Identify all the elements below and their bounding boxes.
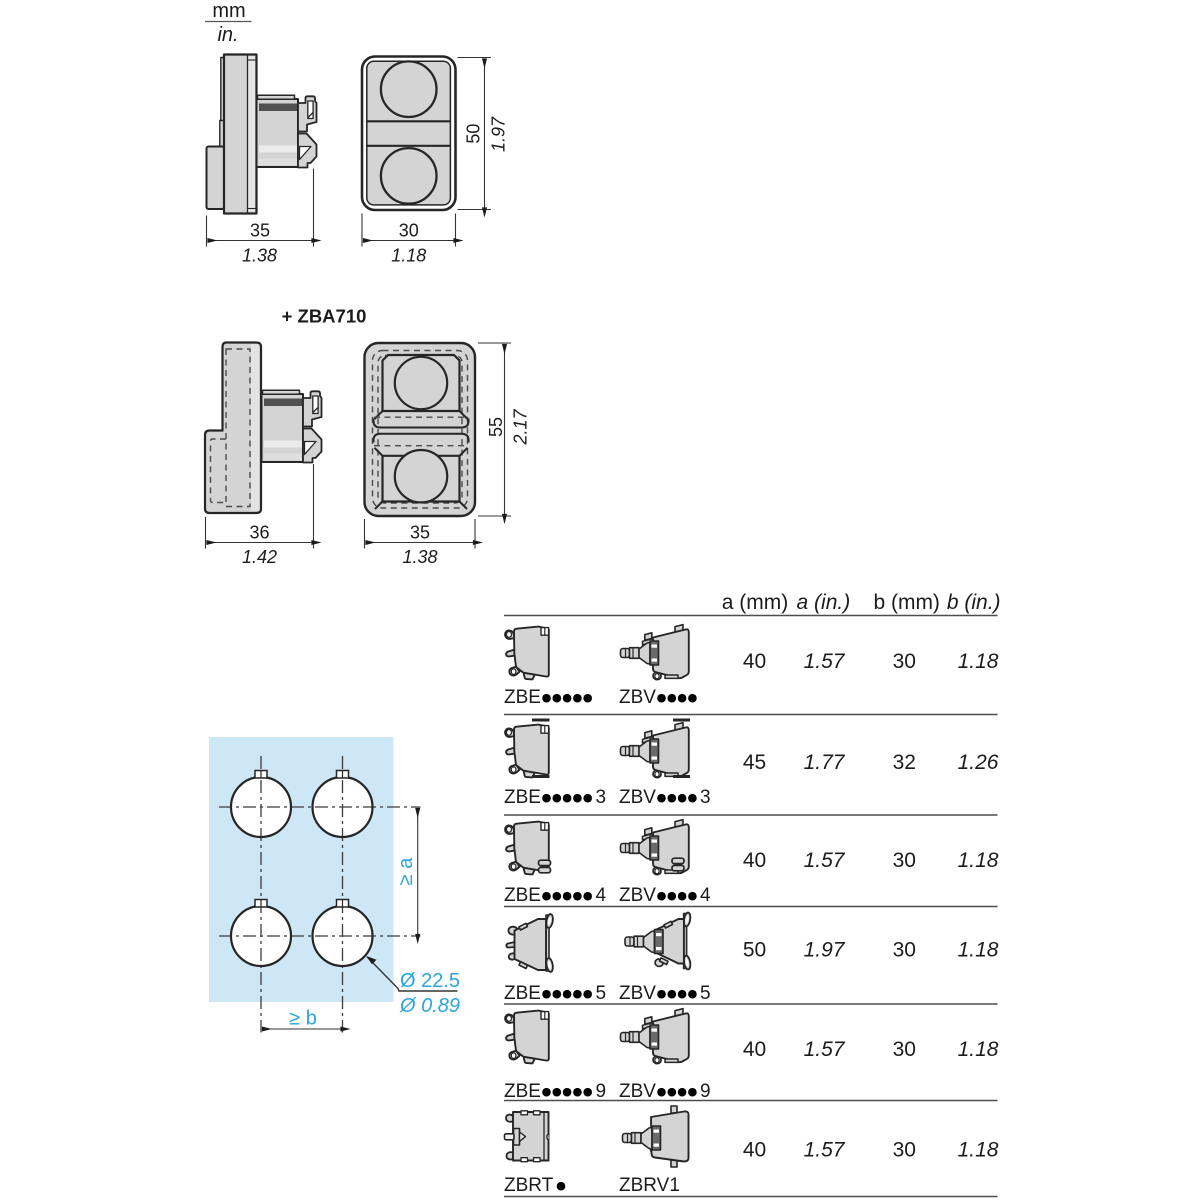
svg-text:ZBV: ZBV: [619, 1081, 656, 1102]
svg-text:5: 5: [596, 983, 607, 1004]
svg-text:1.57: 1.57: [804, 1038, 846, 1061]
svg-text:9: 9: [700, 1081, 711, 1102]
svg-text:ZBRV1: ZBRV1: [619, 1175, 680, 1196]
svg-text:ZBV: ZBV: [619, 885, 656, 906]
svg-text:1.38: 1.38: [402, 547, 437, 567]
svg-text:30: 30: [893, 1038, 916, 1061]
svg-text:a (mm): a (mm): [722, 591, 789, 614]
svg-text:≥ a: ≥ a: [395, 857, 417, 886]
svg-text:32: 32: [893, 751, 916, 774]
svg-text:50: 50: [464, 124, 484, 144]
svg-text:1.42: 1.42: [242, 547, 277, 567]
svg-text:1.18: 1.18: [958, 1038, 999, 1061]
svg-text:1.26: 1.26: [958, 751, 999, 774]
svg-text:ZBV: ZBV: [619, 983, 656, 1004]
svg-text:ZBV: ZBV: [619, 687, 656, 708]
svg-text:35: 35: [410, 523, 430, 543]
svg-text:ZBE: ZBE: [504, 787, 541, 808]
svg-text:3: 3: [700, 787, 711, 808]
svg-text:30: 30: [893, 650, 916, 673]
svg-text:Ø 0.89: Ø 0.89: [399, 995, 460, 1017]
svg-text:40: 40: [743, 1139, 766, 1162]
svg-text:4: 4: [596, 885, 607, 906]
svg-text:30: 30: [893, 849, 916, 872]
svg-text:ZBE: ZBE: [504, 983, 541, 1004]
svg-text:ZBE: ZBE: [504, 885, 541, 906]
svg-text:40: 40: [743, 1038, 766, 1061]
svg-text:9: 9: [596, 1081, 607, 1102]
svg-text:ZBV: ZBV: [619, 787, 656, 808]
svg-text:≥ b: ≥ b: [289, 1008, 317, 1030]
svg-text:30: 30: [399, 221, 419, 241]
svg-text:in.: in.: [217, 24, 238, 46]
svg-text:ZBRT: ZBRT: [504, 1175, 554, 1196]
svg-text:36: 36: [249, 523, 269, 543]
svg-text:1.97: 1.97: [489, 116, 509, 152]
svg-text:50: 50: [743, 939, 766, 962]
svg-text:mm: mm: [212, 0, 245, 22]
svg-text:+ ZBA710: + ZBA710: [282, 306, 367, 327]
svg-text:1.97: 1.97: [804, 939, 846, 962]
svg-text:1.18: 1.18: [391, 245, 426, 265]
svg-text:3: 3: [596, 787, 607, 808]
svg-text:1.77: 1.77: [804, 751, 846, 774]
svg-text:5: 5: [700, 983, 711, 1004]
svg-text:40: 40: [743, 650, 766, 673]
svg-text:b (mm): b (mm): [873, 591, 940, 614]
svg-text:1.57: 1.57: [804, 1139, 846, 1162]
svg-text:40: 40: [743, 849, 766, 872]
svg-text:1.38: 1.38: [242, 245, 277, 265]
svg-text:1.18: 1.18: [958, 650, 999, 673]
svg-text:Ø 22.5: Ø 22.5: [400, 970, 460, 992]
svg-text:30: 30: [893, 939, 916, 962]
svg-text:1.18: 1.18: [958, 939, 999, 962]
svg-text:1.18: 1.18: [958, 849, 999, 872]
svg-text:35: 35: [250, 221, 270, 241]
svg-text:b (in.): b (in.): [947, 591, 1001, 614]
svg-text:a (in.): a (in.): [797, 591, 851, 614]
svg-text:30: 30: [893, 1139, 916, 1162]
svg-text:ZBE: ZBE: [504, 1081, 541, 1102]
svg-text:1.57: 1.57: [804, 849, 846, 872]
svg-text:4: 4: [700, 885, 711, 906]
svg-text:45: 45: [743, 751, 766, 774]
svg-text:2.17: 2.17: [511, 409, 531, 446]
svg-text:1.18: 1.18: [958, 1139, 999, 1162]
svg-text:ZBE: ZBE: [504, 687, 541, 708]
svg-text:1.57: 1.57: [804, 650, 846, 673]
svg-text:55: 55: [486, 417, 506, 437]
